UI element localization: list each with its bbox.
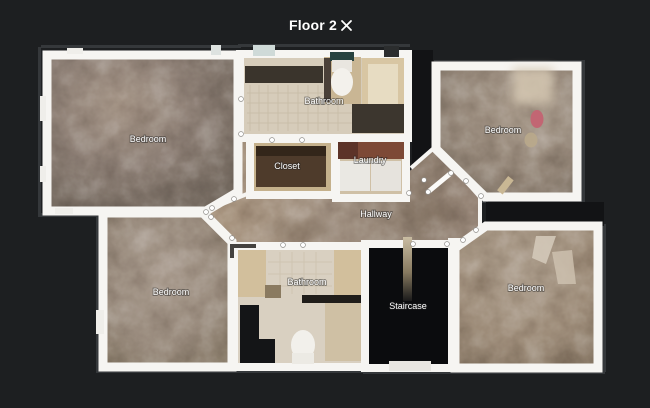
- svg-text:Bedroom: Bedroom: [153, 287, 190, 297]
- svg-text:Bathroom: Bathroom: [304, 96, 343, 106]
- svg-text:Laundry: Laundry: [354, 155, 387, 165]
- svg-text:Bathroom: Bathroom: [287, 277, 326, 287]
- svg-text:Staircase: Staircase: [389, 301, 427, 311]
- svg-text:Bedroom: Bedroom: [130, 134, 167, 144]
- svg-text:Hallway: Hallway: [360, 209, 392, 219]
- svg-text:Closet: Closet: [274, 161, 300, 171]
- svg-text:Bedroom: Bedroom: [485, 125, 522, 135]
- svg-text:Bedroom: Bedroom: [508, 283, 545, 293]
